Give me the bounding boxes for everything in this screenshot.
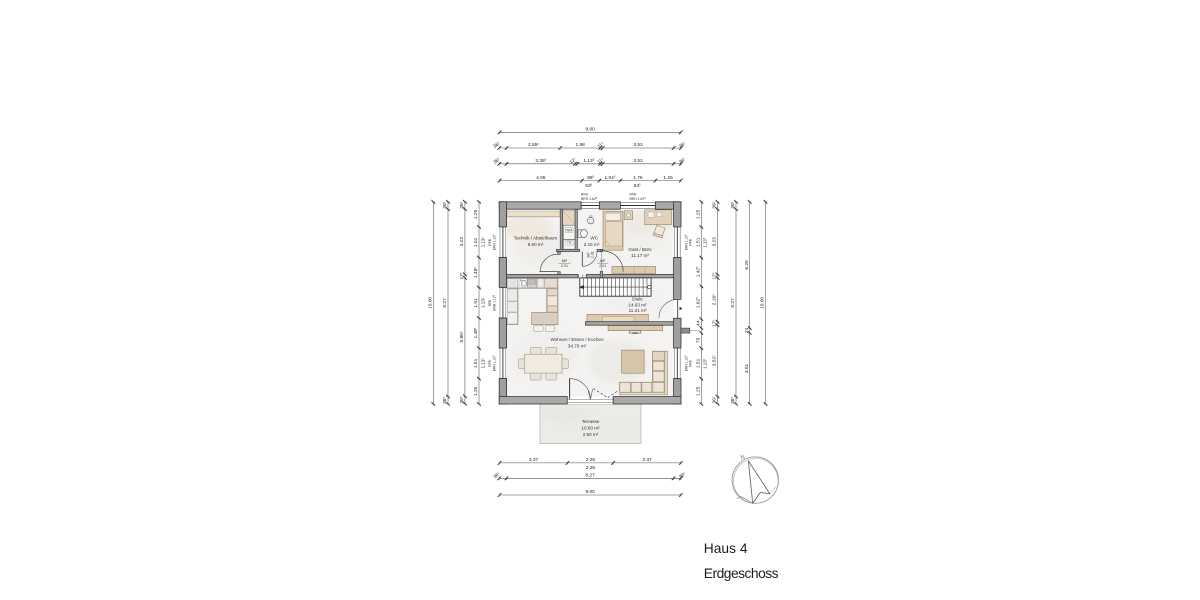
svg-text:1.51: 1.51 [473,237,479,247]
svg-text:1.51: 1.51 [473,298,479,308]
svg-text:1.485: 1.485 [473,327,479,338]
svg-text:1.51: 1.51 [473,358,479,368]
svg-text:1.76: 1.76 [633,175,643,181]
svg-text:8.27: 8.27 [585,473,595,479]
svg-text:365: 365 [492,471,502,480]
svg-text:10.00: 10.00 [760,297,766,309]
svg-text:3.23: 3.23 [459,237,465,247]
svg-text:1.25: 1.25 [473,386,479,396]
svg-text:9.00: 9.00 [586,127,596,133]
svg-text:75: 75 [696,337,702,343]
svg-text:111: 111 [596,156,605,165]
svg-text:2.655: 2.655 [528,142,539,148]
svg-text:24: 24 [744,328,750,334]
svg-text:1.425: 1.425 [695,266,701,277]
svg-text:WC: WC [590,236,598,241]
svg-text:2.01: 2.01 [591,251,595,258]
svg-text:1.135: 1.135 [702,237,707,248]
svg-text:2.50 m²: 2.50 m² [583,432,599,437]
svg-text:365: 365 [730,397,736,404]
svg-text:2.15 m²: 2.15 m² [584,242,600,247]
svg-text:365: 365 [442,397,448,404]
svg-text:885: 885 [587,175,594,181]
svg-text:10.00 m²: 10.00 m² [581,426,600,431]
svg-text:2.26: 2.26 [586,457,596,463]
svg-text:1.485: 1.485 [473,267,479,278]
svg-text:1.135: 1.135 [480,237,485,248]
svg-text:365: 365 [459,201,465,208]
svg-text:365: 365 [711,201,717,208]
svg-text:88⁵: 88⁵ [600,259,606,263]
svg-text:11.21 m²: 11.21 m² [629,308,647,313]
svg-text:635: 635 [634,183,641,189]
svg-text:TR: TR [567,241,572,245]
svg-text:365: 365 [492,156,502,165]
svg-text:Haus 4: Haus 4 [704,541,748,556]
svg-text:Wohnen / Essen / Kochen: Wohnen / Essen / Kochen [550,337,603,342]
svg-text:3.385: 3.385 [535,158,546,164]
svg-text:6.25: 6.25 [744,260,750,270]
svg-text:BRH 1.125: BRH 1.125 [492,294,496,310]
svg-text:3.37: 3.37 [642,457,652,463]
svg-text:4.06: 4.06 [536,175,546,181]
svg-text:14.63 m²: 14.63 m² [628,303,647,308]
svg-text:44: 44 [696,320,702,326]
svg-text:1.51: 1.51 [696,358,702,368]
svg-text:1.25: 1.25 [663,175,673,181]
svg-text:3.52: 3.52 [633,158,643,164]
svg-text:365: 365 [678,471,688,480]
svg-text:3.23: 3.23 [712,237,718,247]
svg-text:365: 365 [459,396,465,403]
svg-text:Gast / Büro: Gast / Büro [628,247,652,252]
svg-text:1.135: 1.135 [480,297,485,308]
svg-text:1.51: 1.51 [696,237,702,247]
svg-text:BRH 1.125: BRH 1.125 [492,355,496,371]
svg-text:1.135: 1.135 [702,358,707,369]
svg-text:RFB: RFB [689,238,693,245]
svg-text:11.17 m²: 11.17 m² [631,253,649,258]
svg-text:3.51: 3.51 [744,364,750,374]
svg-text:365: 365 [442,201,448,208]
svg-text:5.865: 5.865 [459,331,465,342]
svg-text:365: 365 [730,201,736,208]
svg-text:1.25: 1.25 [696,209,702,219]
svg-text:3.525: 3.525 [711,355,717,366]
svg-text:BRH 1.125: BRH 1.125 [492,234,496,250]
svg-text:RFB: RFB [689,359,693,366]
svg-text:111: 111 [596,140,605,149]
svg-text:Diele: Diele [632,297,643,302]
svg-text:BRH 1.625: BRH 1.625 [630,197,647,201]
svg-text:1.98: 1.98 [576,142,586,148]
svg-text:1.25: 1.25 [473,209,479,219]
svg-text:34.76 m²: 34.76 m² [568,343,587,348]
svg-text:9.27: 9.27 [730,298,736,308]
svg-text:1.135: 1.135 [480,358,485,369]
svg-text:10.00: 10.00 [428,297,434,309]
svg-text:3.37: 3.37 [529,457,539,463]
svg-text:9.60 m²: 9.60 m² [528,242,544,247]
svg-text:9.00: 9.00 [586,489,596,495]
svg-text:2.165: 2.165 [711,294,717,305]
svg-text:1.045: 1.045 [605,175,616,181]
svg-text:2.01: 2.01 [599,264,606,268]
svg-text:RFB: RFB [581,193,589,197]
svg-text:9.27: 9.27 [442,298,448,308]
svg-text:2.01: 2.01 [561,264,568,268]
svg-text:365: 365 [711,396,717,403]
svg-text:1.135: 1.135 [583,158,594,164]
svg-text:365: 365 [492,140,502,149]
svg-text:N: N [740,455,746,462]
svg-text:365: 365 [678,140,688,149]
svg-text:Terrasse: Terrasse [582,419,600,424]
svg-text:88⁵: 88⁵ [562,259,568,263]
svg-text:365: 365 [678,156,688,165]
svg-text:2.26: 2.26 [586,465,596,471]
svg-text:Technik / Abstellraum: Technik / Abstellraum [514,235,558,240]
svg-text:1.625: 1.625 [695,297,701,308]
svg-text:RFB: RFB [630,193,638,197]
svg-text:Erdgeschoss: Erdgeschoss [704,566,779,581]
svg-text:3.52: 3.52 [633,142,643,148]
svg-text:635: 635 [585,183,592,189]
svg-text:1.25: 1.25 [696,386,702,396]
svg-text:BRH 1.625: BRH 1.625 [581,197,598,201]
svg-text:WM: WM [566,228,572,232]
